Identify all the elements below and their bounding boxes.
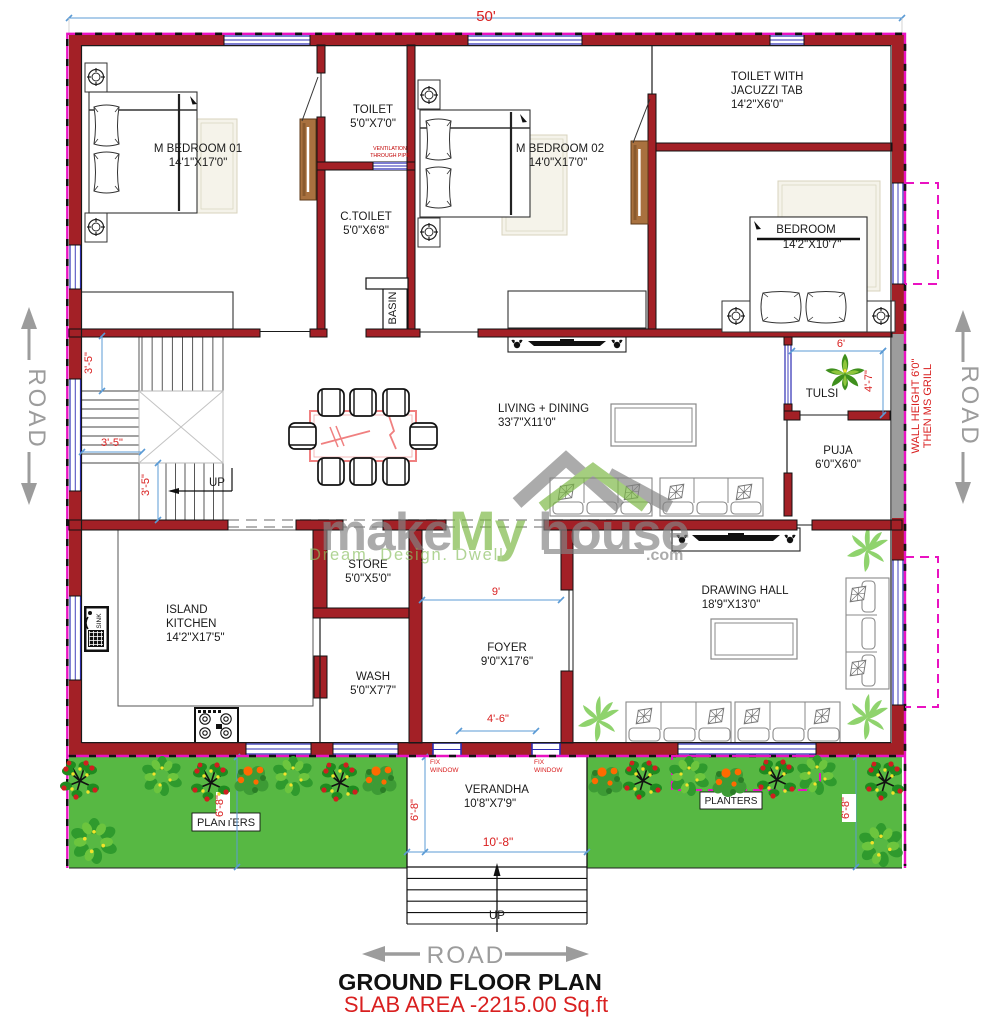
svg-text:5'0"X7'0": 5'0"X7'0" <box>350 118 396 130</box>
svg-text:4'-6": 4'-6" <box>487 713 509 725</box>
svg-text:ROAD: ROAD <box>427 942 506 969</box>
svg-text:50': 50' <box>476 8 496 25</box>
svg-text:14'2"X6'0": 14'2"X6'0" <box>731 99 783 111</box>
svg-text:SLAB AREA -2215.00 Sq.ft: SLAB AREA -2215.00 Sq.ft <box>344 992 608 1017</box>
svg-text:FIX: FIX <box>430 759 441 766</box>
svg-text:14'1"X17'0": 14'1"X17'0" <box>169 157 228 169</box>
svg-text:PLANTERS: PLANTERS <box>705 796 758 807</box>
svg-text:.com: .com <box>646 547 683 564</box>
svg-text:6'-8": 6'-8" <box>214 795 226 817</box>
svg-text:18'9"X13'0": 18'9"X13'0" <box>702 599 761 611</box>
svg-text:FIX: FIX <box>534 759 545 766</box>
svg-text:4'-7": 4'-7" <box>863 370 875 392</box>
svg-text:C.TOILET: C.TOILET <box>340 211 392 223</box>
svg-text:JACUZZI TAB: JACUZZI TAB <box>731 85 803 97</box>
svg-text:WALL HEIGHT 6'0": WALL HEIGHT 6'0" <box>910 358 922 453</box>
svg-text:LIVING + DINING: LIVING + DINING <box>498 403 589 415</box>
svg-text:THROUGH PIPE: THROUGH PIPE <box>370 153 410 159</box>
svg-text:M BEDROOM 02: M BEDROOM 02 <box>516 143 604 155</box>
svg-text:10'8"X7'9": 10'8"X7'9" <box>464 798 516 810</box>
svg-text:VERANDHA: VERANDHA <box>465 784 529 796</box>
svg-text:9': 9' <box>492 586 500 598</box>
svg-text:ROAD: ROAD <box>956 365 983 446</box>
svg-text:ROAD: ROAD <box>23 368 50 449</box>
svg-text:FOYER: FOYER <box>487 642 527 654</box>
svg-text:3'-5": 3'-5" <box>140 474 152 496</box>
svg-text:SINK: SINK <box>96 613 103 629</box>
svg-text:Dream. Design. Dwell: Dream. Design. Dwell <box>309 546 505 564</box>
svg-text:6'-8": 6'-8" <box>840 797 852 819</box>
svg-text:BEDROOM: BEDROOM <box>776 224 835 236</box>
svg-text:10'-8": 10'-8" <box>483 835 514 849</box>
svg-text:ISLAND: ISLAND <box>166 604 208 616</box>
svg-text:3'-5": 3'-5" <box>83 352 95 374</box>
svg-text:KITCHEN: KITCHEN <box>166 618 216 630</box>
svg-text:DRAWING HALL: DRAWING HALL <box>701 585 789 597</box>
svg-text:TOILET WITH: TOILET WITH <box>731 71 803 83</box>
svg-text:5'0"X6'8": 5'0"X6'8" <box>343 225 389 237</box>
svg-text:WINDOW: WINDOW <box>430 767 459 774</box>
svg-text:5'0"X5'0": 5'0"X5'0" <box>345 573 391 585</box>
svg-text:WASH: WASH <box>356 671 390 683</box>
svg-text:UP: UP <box>489 910 505 922</box>
svg-text:33'7"X11'0": 33'7"X11'0" <box>498 417 556 429</box>
svg-text:PUJA: PUJA <box>823 445 853 457</box>
svg-text:14'2"X17'5": 14'2"X17'5" <box>166 632 225 644</box>
svg-text:M BEDROOM 01: M BEDROOM 01 <box>154 143 242 155</box>
svg-text:14'2"X10'7": 14'2"X10'7" <box>783 239 842 251</box>
svg-text:VENTILATION: VENTILATION <box>373 146 407 152</box>
svg-text:5'0"X7'7": 5'0"X7'7" <box>350 685 396 697</box>
svg-text:3'-5": 3'-5" <box>101 437 123 449</box>
svg-text:UP: UP <box>209 477 225 489</box>
svg-text:THEN MS GRILL: THEN MS GRILL <box>922 364 934 448</box>
svg-text:BASIN: BASIN <box>387 291 399 324</box>
svg-text:6': 6' <box>837 338 845 350</box>
svg-text:14'0"X17'0": 14'0"X17'0" <box>529 157 588 169</box>
svg-text:TULSI: TULSI <box>806 388 839 400</box>
svg-text:TOILET: TOILET <box>353 104 393 116</box>
svg-text:WINDOW: WINDOW <box>534 767 563 774</box>
svg-text:9'0"X17'6": 9'0"X17'6" <box>481 656 533 668</box>
svg-text:6'0"X6'0": 6'0"X6'0" <box>815 459 861 471</box>
svg-text:6'-8": 6'-8" <box>409 799 421 821</box>
